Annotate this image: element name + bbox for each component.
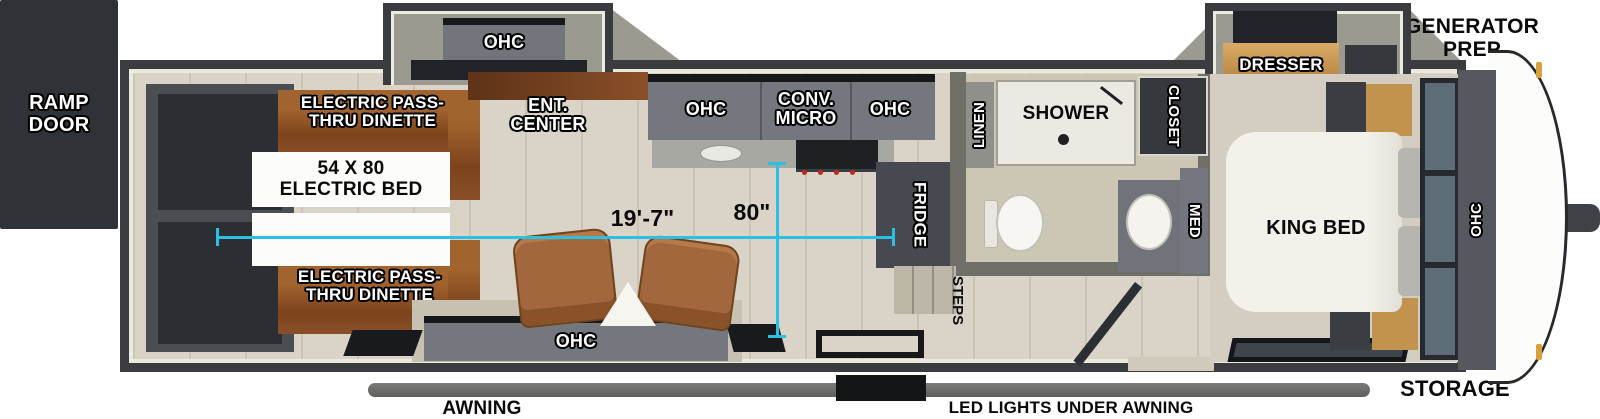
ohc-left-label: OHC xyxy=(656,100,756,119)
ent-center-label: ENT. CENTER xyxy=(492,96,604,135)
window xyxy=(343,330,422,356)
shower-drain-icon xyxy=(1058,134,1069,145)
dimension-tick xyxy=(768,162,786,165)
electric-bed-upper: 54 X 80 ELECTRIC BED xyxy=(252,152,450,207)
mirrored-wardrobe xyxy=(1420,78,1460,360)
recliner-left xyxy=(511,227,618,329)
entry-step-exterior xyxy=(836,375,926,401)
front-cap xyxy=(1488,50,1568,384)
shower: SHOWER xyxy=(996,80,1136,166)
nightstand xyxy=(1366,84,1412,136)
electric-bed-lower xyxy=(252,213,450,266)
cabinet xyxy=(1326,82,1366,136)
clearance-light-icon xyxy=(1536,344,1542,360)
toilet-icon xyxy=(996,194,1044,252)
dimension-tick xyxy=(216,228,219,246)
electric-bed-label: 54 X 80 ELECTRIC BED xyxy=(276,159,426,200)
king-bed-label: KING BED xyxy=(1246,218,1386,240)
steps-label: STEPS xyxy=(944,276,966,348)
length-dimension-line xyxy=(218,236,894,239)
med-label: MED xyxy=(1186,204,1202,238)
overhead-cabinet: OHC xyxy=(443,18,565,60)
microwave-icon xyxy=(796,140,878,172)
front-ohc-label: OHC xyxy=(1469,203,1485,237)
dimension-tick xyxy=(768,335,786,338)
linen-cabinet: LINEN xyxy=(966,82,994,168)
led-lights-label: LED LIGHTS UNDER AWNING xyxy=(941,399,1201,417)
kitchen-sink-icon xyxy=(700,145,742,162)
linen-label: LINEN xyxy=(972,102,988,148)
shower-label: SHOWER xyxy=(998,104,1134,125)
entry-door-opening xyxy=(1128,357,1214,371)
width-dimension-label: 80" xyxy=(726,200,778,225)
fridge-label: FRIDGE xyxy=(910,182,928,247)
wall xyxy=(950,72,966,274)
conv-micro-label: CONV. MICRO xyxy=(764,90,848,129)
stove-knobs-icon xyxy=(802,170,874,176)
width-dimension-line xyxy=(776,163,779,338)
clearance-light-icon xyxy=(1536,62,1542,78)
window xyxy=(1233,11,1337,43)
kitchen-overhead-row: OHC CONV. MICRO OHC xyxy=(648,74,935,140)
front-overhead-cabinet: OHC xyxy=(1458,70,1496,370)
ramp-door-label: RAMP DOOR xyxy=(19,93,99,136)
awning-label: AWNING xyxy=(422,399,542,419)
entry-step-well xyxy=(816,330,924,358)
floorplan: RAMP DOOR GENERATOR PREP STORAGE AWNING … xyxy=(0,0,1600,419)
closet-label: CLOSET xyxy=(1165,85,1181,147)
ramp-door: RAMP DOOR xyxy=(0,0,118,229)
dinette-top-label: ELECTRIC PASS-THRU DINETTE xyxy=(290,94,455,131)
vanity xyxy=(1118,180,1182,272)
medicine-cabinet: MED xyxy=(1180,168,1208,274)
sink-icon xyxy=(1126,194,1172,250)
closet: CLOSET xyxy=(1138,76,1208,156)
ohc-right-label: OHC xyxy=(854,100,926,119)
length-dimension-label: 19'-7" xyxy=(600,206,685,231)
dimension-tick xyxy=(892,228,895,246)
